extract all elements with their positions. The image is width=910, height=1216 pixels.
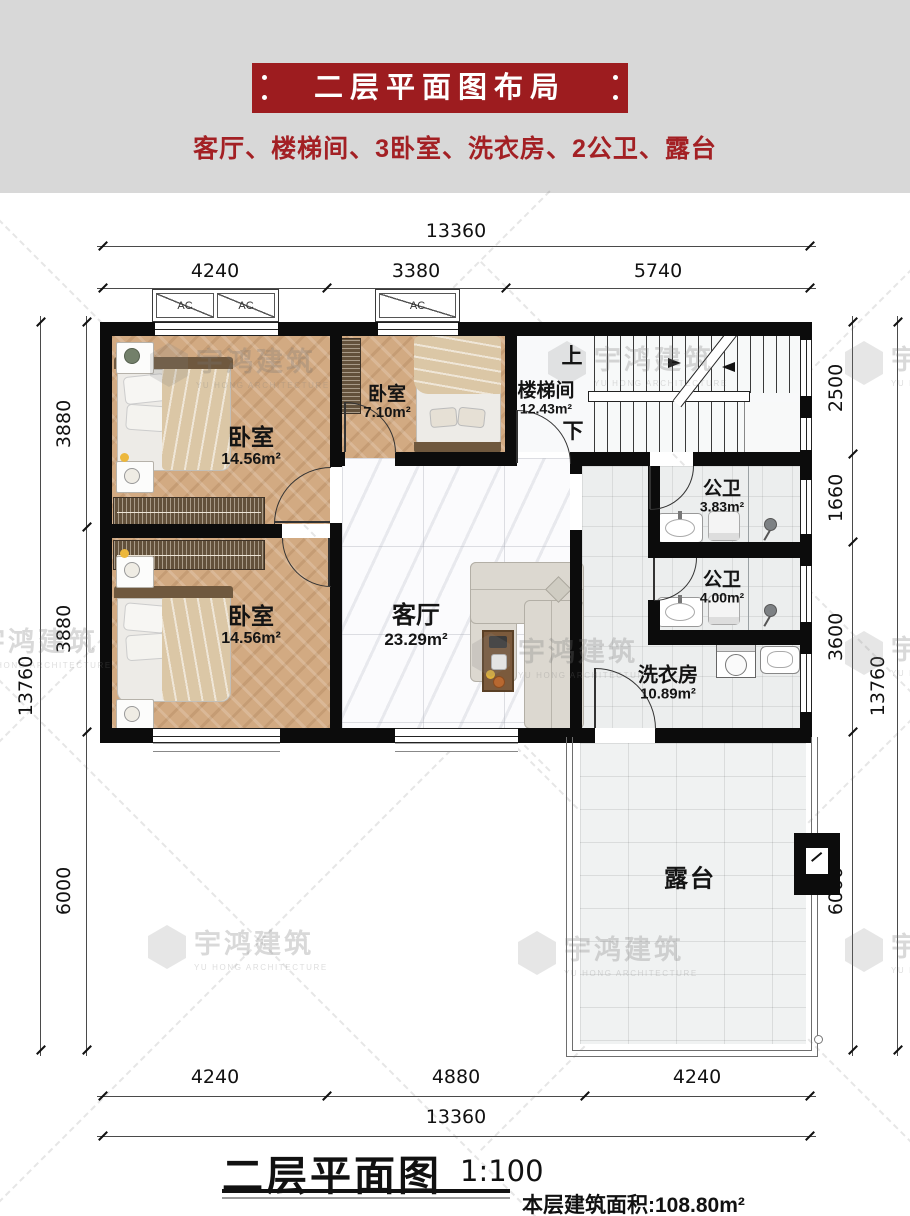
bed-blanket	[414, 336, 501, 394]
title-underline	[222, 1197, 510, 1199]
dim-tick	[848, 727, 858, 737]
room-label-bedroom-tm: 卧室 7.10m²	[363, 384, 411, 422]
down-text: 下	[563, 420, 584, 444]
floor-area-text: 本层建筑面积:108.80m²	[522, 1189, 745, 1216]
wall-segment	[570, 452, 650, 466]
room-label-laundry: 洗衣房 10.89m²	[638, 664, 698, 703]
window-sill	[395, 743, 518, 752]
page-subtitle: 客厅、楼梯间、3卧室、洗衣房、2公卫、露台	[0, 129, 910, 165]
watermark: 宇鸿建筑YU HONG ARCHITECTURE	[845, 338, 910, 388]
watermark-logo-icon	[845, 341, 883, 385]
dim-label-left-seg: 6000	[53, 867, 75, 915]
room-area: 23.29m²	[384, 630, 447, 649]
dim-label-top-seg: 5740	[634, 260, 682, 282]
watermark: 宇鸿建筑YU HONG ARCHITECTURE	[845, 925, 910, 975]
bathroom-sink	[657, 513, 703, 543]
table-item	[493, 676, 505, 688]
stairs-direction-arrow	[668, 358, 681, 368]
watermark-cn: 宇鸿建筑	[891, 338, 910, 377]
terrace-railing	[572, 737, 812, 1051]
room-area: 12.43m²	[517, 402, 574, 418]
room-name: 露台	[664, 867, 716, 894]
page-title: 二层平面图布局	[252, 63, 628, 113]
column-inner	[806, 848, 828, 874]
dim-line	[97, 1136, 816, 1137]
floor-plan-page: 二层平面图布局 客厅、楼梯间、3卧室、洗衣房、2公卫、露台	[0, 0, 910, 1216]
window	[800, 340, 812, 396]
dim-tick	[36, 317, 46, 327]
toilet-tank	[709, 617, 739, 624]
dim-tick	[848, 449, 858, 459]
room-area: 3.83m²	[700, 500, 744, 516]
stairs-landing	[744, 402, 799, 452]
drawing-title: 二层平面图	[222, 1142, 442, 1202]
door-leaf	[594, 668, 596, 728]
dim-label-top-total: 13360	[426, 220, 486, 242]
dim-label-top-seg: 4240	[191, 260, 239, 282]
window	[153, 728, 280, 743]
wall-segment	[330, 336, 342, 467]
room-area: 14.56m²	[221, 630, 281, 648]
wall-segment	[280, 728, 395, 743]
door-leaf	[653, 558, 655, 600]
dim-tick	[848, 537, 858, 547]
bed	[114, 357, 233, 471]
wall-segment	[570, 530, 582, 728]
window	[155, 322, 278, 336]
banner-dot	[613, 95, 618, 100]
watermark-logo-icon	[148, 925, 186, 969]
title-underline	[222, 1189, 510, 1193]
title-banner: 二层平面图布局	[252, 63, 628, 113]
column	[794, 833, 840, 895]
drawing-scale: 1:100	[460, 1154, 544, 1188]
door-leaf	[328, 538, 330, 586]
room-name: 公卫	[700, 479, 744, 500]
toilet-tank	[709, 533, 739, 540]
coffee-table	[482, 630, 514, 692]
room-label-bath-lower: 公卫 4.00m²	[700, 570, 744, 607]
washing-machine	[716, 644, 756, 678]
dim-tick	[36, 1045, 46, 1055]
room-name: 卧室	[363, 384, 411, 405]
dim-label-left-total: 13760	[15, 656, 37, 716]
room-area: 7.10m²	[363, 405, 411, 422]
watermark-cn: 宇鸿建筑	[891, 925, 910, 964]
room-name: 公卫	[700, 570, 744, 591]
dim-tick	[82, 727, 92, 737]
ac-label: AC	[379, 293, 456, 318]
door-leaf	[274, 521, 330, 523]
stairs-handrail	[588, 391, 750, 402]
ac-unit-box: AC AC	[152, 289, 279, 322]
room-area: 14.56m²	[221, 451, 281, 469]
bed-pillow	[125, 404, 167, 433]
watermark-en: YU HONG ARCHITECTURE	[891, 379, 910, 388]
dim-label-right-seg: 1660	[825, 474, 847, 522]
watermark-cn: 宇鸿建筑	[891, 628, 910, 667]
door-leaf	[649, 466, 651, 509]
shower-divider	[748, 466, 749, 542]
column-mark	[811, 852, 822, 862]
ac-text: AC	[410, 300, 425, 312]
sink-faucet-icon	[678, 511, 682, 519]
room-name: 洗衣房	[638, 664, 698, 686]
bed-pillow	[123, 602, 167, 634]
door-leaf	[516, 410, 518, 463]
dim-tick	[893, 1045, 903, 1055]
dim-label-bottom-total: 13360	[426, 1106, 486, 1128]
dim-label-right-seg: 3600	[825, 613, 847, 661]
dim-tick	[82, 317, 92, 327]
washer-drum-icon	[725, 654, 747, 676]
banner-dot	[262, 75, 267, 80]
table-item	[491, 654, 507, 670]
dim-line	[40, 316, 41, 1056]
window	[800, 418, 812, 450]
washer-controls	[717, 645, 755, 652]
ac-label: AC	[217, 293, 275, 318]
bed	[114, 586, 233, 702]
window	[800, 654, 812, 712]
flower-icon	[120, 549, 129, 558]
dim-label-left-seg: 3880	[53, 400, 75, 448]
bed	[414, 336, 501, 454]
ac-unit-box: AC	[375, 289, 460, 322]
wall-segment	[800, 322, 812, 340]
dim-label-bottom-seg: 4240	[673, 1066, 721, 1088]
drain-circle	[814, 1035, 823, 1044]
stairs-treads	[594, 402, 744, 452]
wall-segment	[330, 452, 345, 466]
wardrobe	[113, 497, 265, 526]
watermark-logo-icon	[845, 928, 883, 972]
banner-dot	[262, 95, 267, 100]
room-label-living: 客厅 23.29m²	[384, 603, 447, 649]
watermark-logo-icon	[518, 931, 556, 975]
dim-tick	[848, 1045, 858, 1055]
dim-tick	[82, 522, 92, 532]
dim-label-bottom-seg: 4240	[191, 1066, 239, 1088]
dim-line	[97, 288, 816, 289]
dim-label-top-seg: 3380	[392, 260, 440, 282]
bed-pillow	[429, 407, 458, 428]
wall-segment	[693, 452, 812, 466]
dim-label-right-total: 13760	[867, 656, 889, 716]
watermark-en: YU HONG ARCHITECTURE	[891, 966, 910, 975]
wall-segment	[112, 524, 282, 538]
door-leaf	[344, 402, 346, 452]
wall-segment	[648, 542, 812, 558]
stair-down-label: 下	[563, 420, 584, 444]
dim-line	[97, 1096, 816, 1097]
shower-head-icon	[764, 604, 777, 617]
bed-blanket	[162, 369, 230, 470]
sink-basin	[665, 519, 695, 537]
room-name: 楼梯间	[517, 381, 574, 402]
dim-tick	[893, 317, 903, 327]
wall-segment	[800, 396, 812, 418]
dim-tick	[82, 1045, 92, 1055]
dim-line	[897, 316, 898, 1056]
tray	[489, 636, 507, 648]
wall-segment	[100, 728, 153, 743]
ac-text: AC	[177, 300, 192, 312]
shower-head-icon	[764, 518, 777, 531]
room-area: 10.89m²	[638, 687, 698, 704]
lamp-icon	[124, 706, 140, 722]
ac-text: AC	[238, 300, 253, 312]
bed-pillow	[457, 407, 486, 429]
toilet	[708, 511, 740, 541]
sink-basin	[665, 603, 695, 621]
dim-line	[852, 316, 853, 1056]
banner-dot	[613, 75, 618, 80]
wall-segment	[648, 630, 812, 645]
sink-basin	[767, 651, 793, 668]
lamp-icon	[124, 562, 140, 578]
dim-line	[86, 316, 87, 1056]
lamp-icon	[124, 468, 140, 484]
bed-pillow	[125, 633, 167, 662]
ac-label: AC	[156, 293, 214, 318]
wall-segment	[570, 452, 582, 474]
window	[800, 480, 812, 534]
laundry-sink	[760, 646, 800, 674]
shower-divider	[748, 558, 749, 630]
dim-label-bottom-seg: 4880	[432, 1066, 480, 1088]
room-label-bedroom-tl: 卧室 14.56m²	[221, 425, 281, 469]
room-label-stairwell: 楼梯间 12.43m²	[517, 381, 574, 418]
dim-label-left-seg: 3880	[53, 605, 75, 653]
wall-segment	[330, 523, 342, 728]
window	[395, 728, 518, 743]
room-label-terrace: 露台	[664, 867, 716, 894]
plant-icon	[124, 348, 140, 364]
room-name: 卧室	[221, 604, 281, 630]
bed-pillow	[123, 373, 168, 405]
window-sill	[153, 743, 280, 752]
watermark-en: YU HONG ARCHITECTURE	[194, 963, 328, 972]
bathroom-sink	[657, 597, 703, 627]
dim-label-right-seg: 2500	[825, 364, 847, 412]
up-text: 上	[562, 345, 583, 369]
wall-segment	[100, 322, 112, 743]
room-label-bedroom-bl: 卧室 14.56m²	[221, 604, 281, 648]
room-label-bath-upper: 公卫 3.83m²	[700, 479, 744, 516]
window	[378, 322, 458, 336]
stair-up-label: 上	[562, 345, 583, 369]
room-area: 4.00m²	[700, 591, 744, 607]
bed-blanket	[162, 598, 230, 701]
window	[800, 566, 812, 622]
room-name: 客厅	[384, 603, 447, 630]
sink-faucet-icon	[678, 595, 682, 603]
room-name: 卧室	[221, 425, 281, 451]
flower-icon	[120, 453, 129, 462]
stairs-direction-arrow	[722, 362, 735, 372]
dim-line	[97, 246, 816, 247]
wall-segment	[395, 452, 517, 466]
